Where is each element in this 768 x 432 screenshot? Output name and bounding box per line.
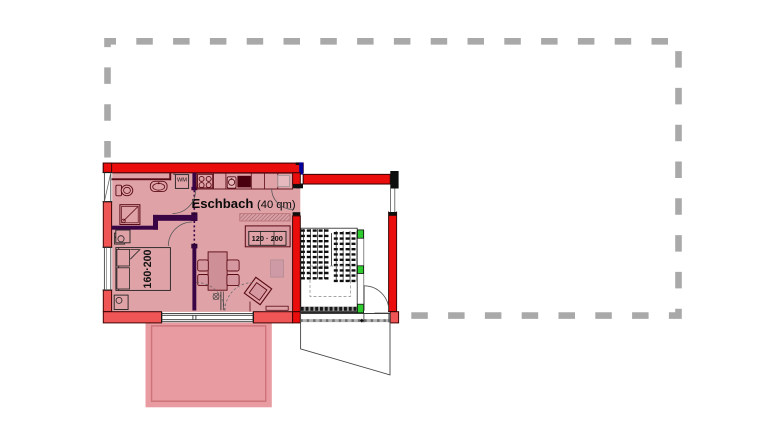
svg-text:WM: WM	[177, 177, 187, 183]
svg-text:160·200: 160·200	[142, 249, 154, 288]
svg-text:Eschbach (40 qm): Eschbach (40 qm)	[192, 196, 296, 211]
svg-text:120 · 200: 120 · 200	[252, 234, 283, 243]
